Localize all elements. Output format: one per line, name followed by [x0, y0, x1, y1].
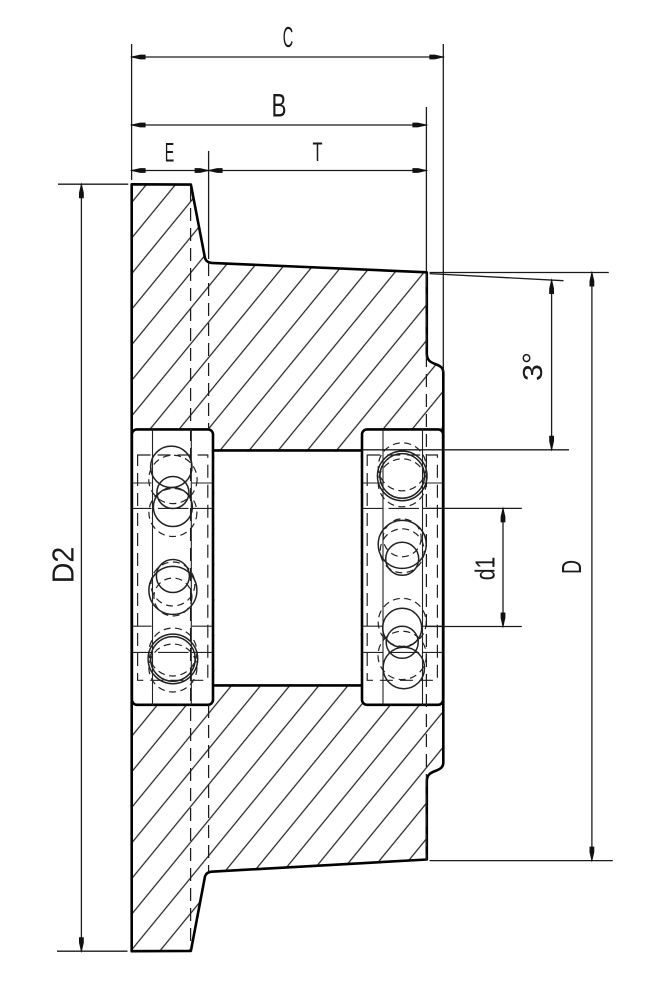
svg-text:D: D — [556, 560, 587, 574]
svg-text:T: T — [313, 137, 323, 167]
svg-text:C: C — [283, 22, 294, 54]
svg-text:3°: 3° — [517, 352, 548, 381]
svg-text:E: E — [165, 137, 175, 167]
svg-text:d1: d1 — [470, 557, 501, 581]
svg-text:B: B — [272, 88, 287, 124]
svg-text:D2: D2 — [46, 547, 81, 584]
